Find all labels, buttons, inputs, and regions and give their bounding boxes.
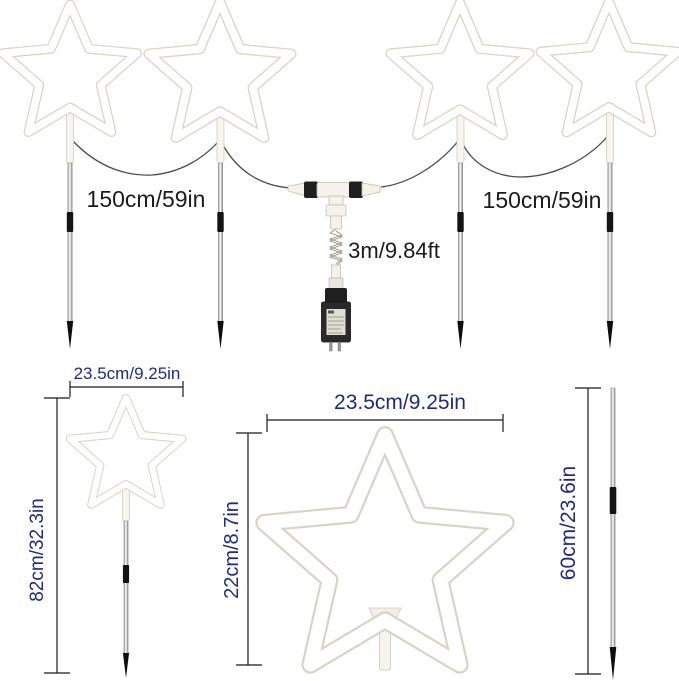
large-star-detail — [264, 435, 506, 670]
small-star-stake — [123, 481, 130, 678]
large-star-height-label: 22cm/8.7in — [220, 450, 244, 650]
ground-stake-detail — [610, 388, 617, 680]
connection-wire-2 — [223, 145, 291, 188]
small-star-width-label: 23.5cm/9.25in — [57, 364, 197, 384]
star-light-1 — [3, 5, 137, 133]
ground-stake-3 — [457, 106, 464, 349]
small-star-height-label: 82cm/32.3in — [26, 450, 50, 650]
stake-height-label: 60cm/23.6in — [556, 413, 582, 633]
large-star-width-label: 23.5cm/9.25in — [318, 391, 482, 415]
star-light-4 — [541, 2, 678, 132]
small-star-detail — [70, 398, 182, 505]
ground-stake-1 — [67, 105, 74, 349]
star-light-2 — [149, 2, 292, 138]
star-light-3 — [391, 3, 530, 135]
ground-stake-2 — [217, 108, 224, 349]
connection-wires — [72, 137, 607, 188]
product-dimension-diagram: 150cm/59in 150cm/59in 3m/9.84ft 23.5cm/9… — [0, 0, 679, 681]
connection-wire-1 — [72, 140, 218, 175]
ground-stake-4 — [607, 103, 614, 349]
left-spacing-label: 150cm/59in — [62, 186, 230, 213]
power-adapter — [322, 265, 351, 351]
right-spacing-label: 150cm/59in — [458, 187, 626, 214]
power-cord-length-label: 3m/9.84ft — [324, 238, 464, 264]
t-connector — [288, 182, 380, 230]
connection-wire-4 — [463, 137, 607, 177]
connection-wire-3 — [381, 140, 459, 187]
